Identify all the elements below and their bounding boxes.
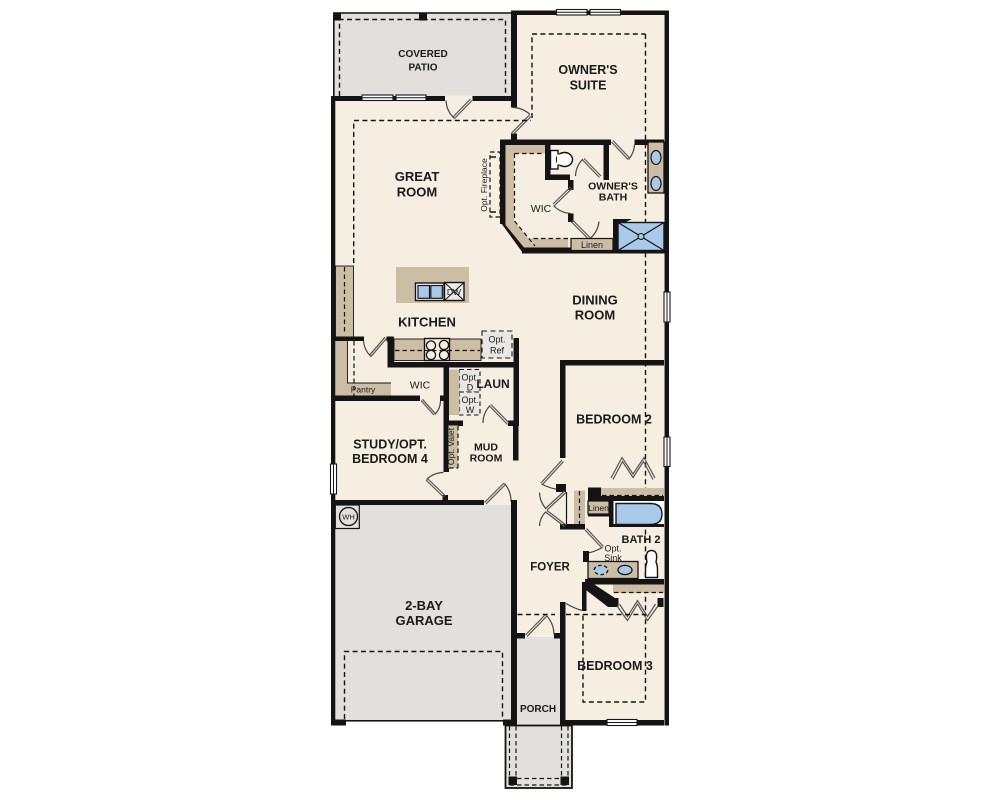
- svg-text:SUITE: SUITE: [570, 79, 607, 93]
- svg-text:OWNER'S: OWNER'S: [558, 63, 617, 77]
- svg-text:BATH: BATH: [599, 192, 627, 204]
- svg-text:GREAT: GREAT: [395, 169, 440, 184]
- svg-text:Opt.: Opt.: [461, 395, 478, 405]
- svg-text:ROOM: ROOM: [397, 185, 437, 200]
- svg-text:STUDY/OPT.: STUDY/OPT.: [353, 438, 427, 452]
- svg-text:ROOM: ROOM: [470, 453, 503, 465]
- svg-text:Linen: Linen: [588, 503, 609, 513]
- svg-text:DINING: DINING: [572, 293, 618, 308]
- svg-text:KITCHEN: KITCHEN: [398, 315, 456, 330]
- svg-text:Ref: Ref: [490, 346, 505, 356]
- svg-text:BEDROOM 2: BEDROOM 2: [576, 413, 652, 427]
- svg-text:WIC: WIC: [410, 380, 431, 392]
- svg-text:WH: WH: [342, 513, 355, 522]
- svg-text:GARAGE: GARAGE: [395, 613, 452, 628]
- svg-text:W: W: [466, 405, 475, 415]
- svg-text:ROOM: ROOM: [575, 308, 615, 323]
- svg-text:Opt. Valet: Opt. Valet: [446, 427, 456, 465]
- svg-text:Linen: Linen: [581, 240, 603, 250]
- svg-text:LAUN: LAUN: [476, 377, 509, 391]
- svg-text:2-BAY: 2-BAY: [405, 598, 443, 613]
- svg-text:PORCH: PORCH: [520, 704, 556, 715]
- svg-text:BEDROOM 4: BEDROOM 4: [352, 452, 428, 466]
- svg-text:Opt.: Opt.: [604, 544, 621, 554]
- svg-text:D: D: [467, 383, 474, 393]
- svg-text:Opt. Fireplace: Opt. Fireplace: [479, 158, 489, 212]
- svg-text:Opt.: Opt.: [488, 335, 505, 345]
- svg-text:PATIO: PATIO: [408, 63, 437, 74]
- svg-text:FOYER: FOYER: [530, 562, 570, 574]
- svg-text:BEDROOM 3: BEDROOM 3: [577, 659, 653, 673]
- svg-text:DW: DW: [447, 287, 461, 297]
- svg-text:BATH 2: BATH 2: [622, 534, 661, 546]
- svg-text:COVERED: COVERED: [398, 49, 447, 60]
- svg-text:Pantry: Pantry: [351, 385, 376, 395]
- svg-text:WIC: WIC: [531, 203, 552, 215]
